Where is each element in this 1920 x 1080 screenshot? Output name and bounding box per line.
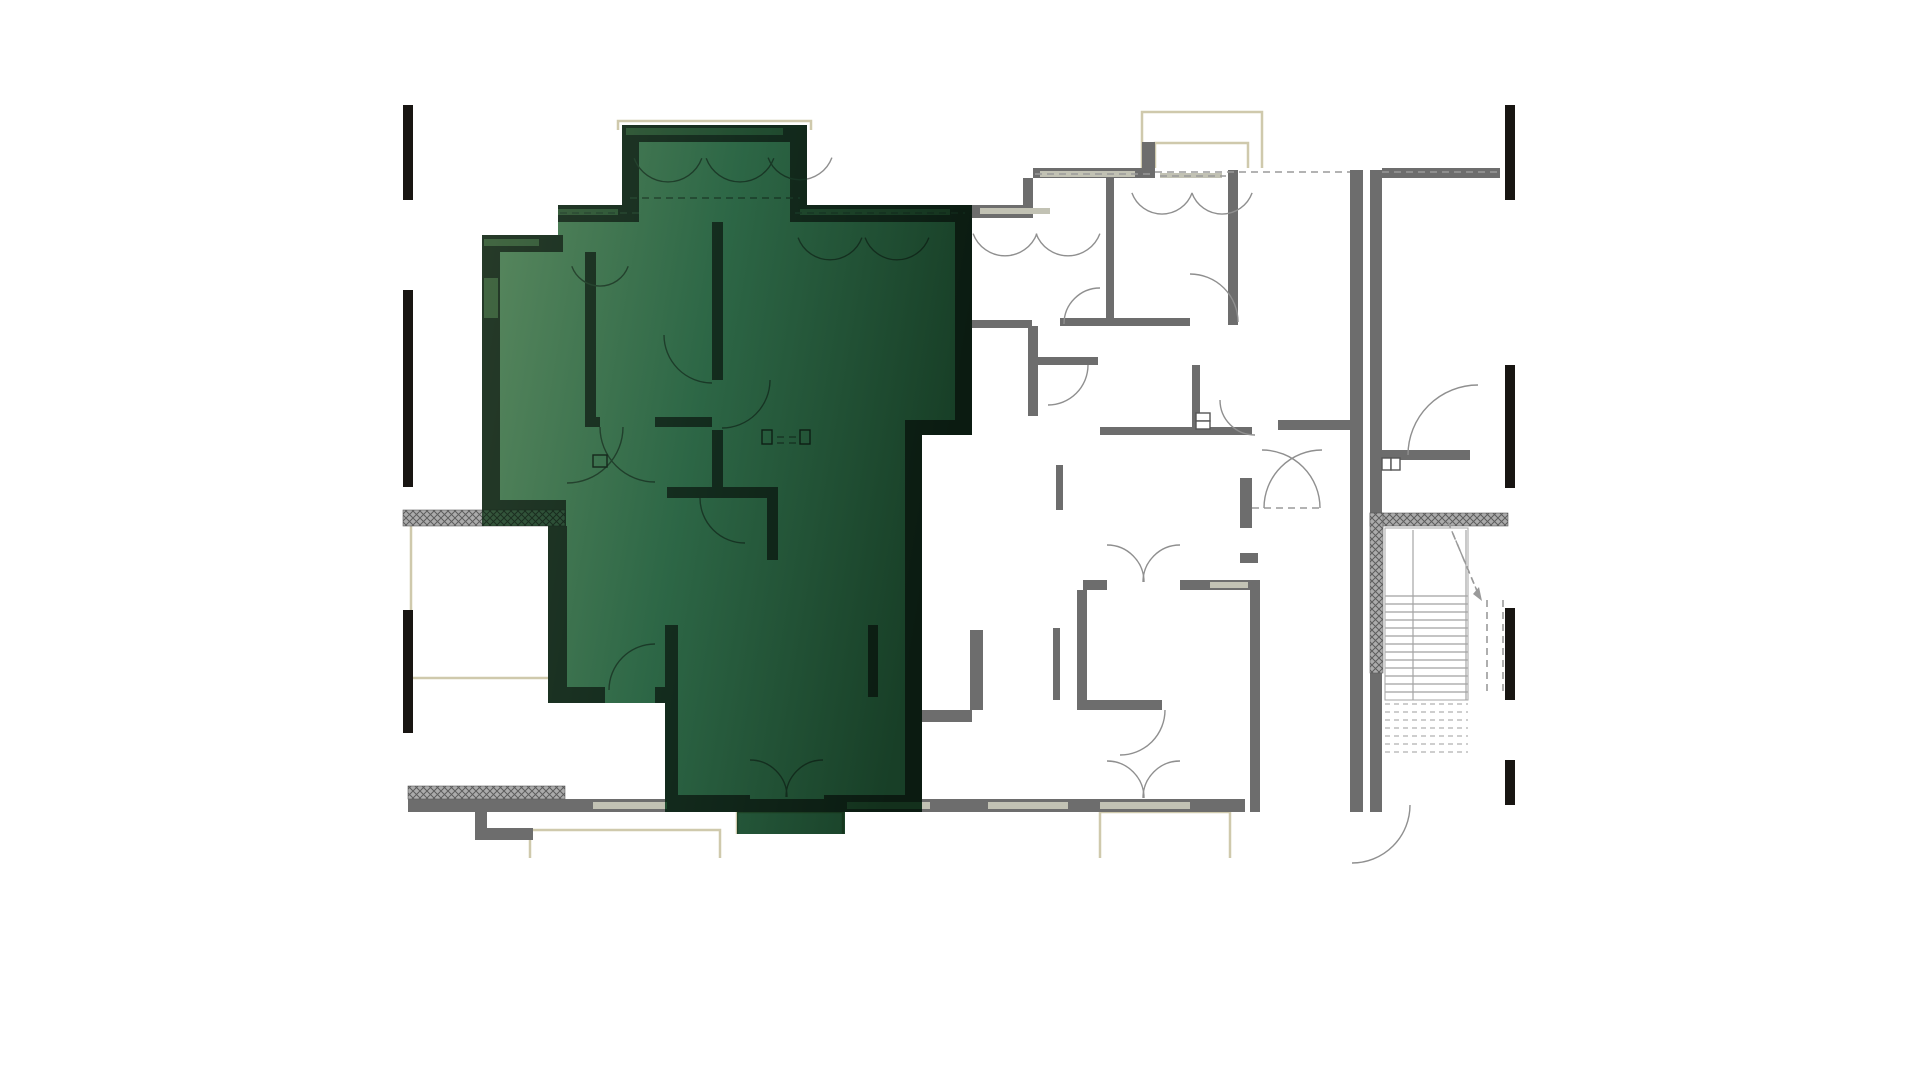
door-swing-arc <box>1143 545 1180 582</box>
wall-segment <box>1382 168 1500 178</box>
wall-segment <box>1077 700 1162 710</box>
hatched-wall <box>1370 513 1508 526</box>
wall-segment <box>1100 427 1252 435</box>
door-swing-arc <box>1036 234 1100 256</box>
fixture <box>1382 458 1391 470</box>
balcony-outline <box>1142 112 1262 168</box>
section-mark <box>403 105 413 200</box>
door-swing-arc <box>1408 385 1478 455</box>
section-mark <box>1505 365 1515 488</box>
door-swing-arc <box>973 234 1037 256</box>
floor-plan-svg <box>0 0 1920 1080</box>
door-swing-arc <box>1352 805 1410 863</box>
balcony-outline <box>530 830 720 858</box>
door-swing-arc <box>1048 365 1088 405</box>
door-swing-arc <box>1120 710 1165 755</box>
hatched-wall <box>1370 513 1383 673</box>
wall-segment <box>972 320 1032 328</box>
wall-segment <box>1240 478 1252 528</box>
door-swing-arc <box>1132 193 1192 214</box>
section-mark <box>1505 608 1515 700</box>
wall-segment <box>1053 628 1060 700</box>
balcony-outline <box>411 526 551 678</box>
stair-outline <box>1385 528 1468 700</box>
hatched-wall <box>403 510 483 526</box>
fixture <box>1196 413 1210 421</box>
door-swing-arc <box>1143 761 1180 798</box>
wall-segment <box>970 630 983 710</box>
wall-segment <box>1083 580 1107 590</box>
fixture <box>1391 458 1400 470</box>
wall-segment <box>1142 142 1155 172</box>
wall-segment <box>1056 465 1063 510</box>
section-mark <box>1505 760 1515 805</box>
stairwell <box>1385 522 1482 752</box>
door-swing-arc <box>1107 761 1144 798</box>
wall-segment <box>1240 553 1258 563</box>
floor-plan-canvas <box>0 0 1920 1080</box>
section-mark <box>1505 105 1515 200</box>
highlighted-unit[interactable] <box>482 125 972 834</box>
wall-segment <box>1038 357 1098 365</box>
balcony-outline <box>1155 143 1248 168</box>
wall-segment <box>1250 580 1260 812</box>
wall-segment <box>1370 170 1382 812</box>
window-band <box>1210 582 1248 588</box>
wall-segment <box>475 828 533 840</box>
door-swing-arc <box>1192 193 1252 214</box>
wall-segment <box>1060 318 1190 326</box>
wall-segment <box>1350 170 1363 812</box>
hatched-wall <box>408 786 565 799</box>
window-band <box>1100 802 1190 809</box>
wall-segment <box>1278 420 1353 430</box>
wall-segment <box>408 798 565 812</box>
door-swing-arc <box>1107 545 1144 582</box>
stair-direction-line <box>1448 522 1480 598</box>
window-band <box>593 802 667 809</box>
window-band <box>980 208 1050 214</box>
window-band <box>988 802 1068 809</box>
section-mark <box>403 610 413 733</box>
wall-segment <box>1106 178 1114 320</box>
wall-segment <box>1077 590 1087 705</box>
balcony-outline <box>1100 812 1230 858</box>
wall-segment <box>1028 326 1038 416</box>
fixture <box>1196 421 1210 429</box>
section-mark <box>403 290 413 487</box>
stair-direction-arrow <box>1473 587 1482 601</box>
wall-segment <box>1250 623 1260 663</box>
